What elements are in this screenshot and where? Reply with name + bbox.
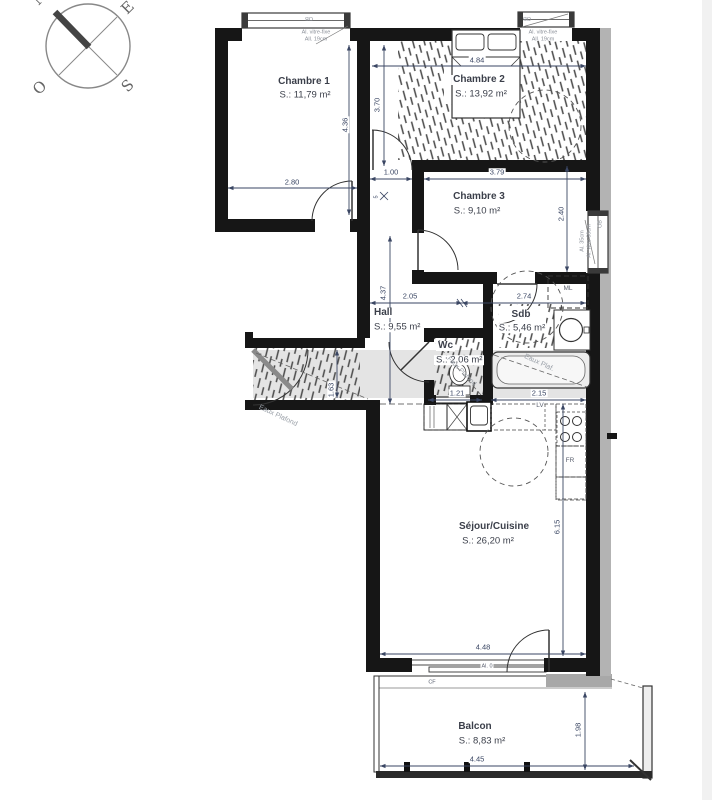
dim-ch2-width: 4.84 — [469, 56, 486, 64]
room-area-balcon: S.: 8,83 m² — [457, 736, 507, 746]
dim-hall-width: 2.05 — [402, 292, 419, 300]
room-area-sejour: S.: 26,20 m² — [460, 536, 516, 546]
dim-passage-width: 1.00 — [383, 168, 400, 176]
page-edge — [702, 0, 712, 800]
compass-rose — [46, 4, 130, 88]
window-note-ch2-l2: All. 19cm — [532, 37, 555, 43]
floorplan-page: Chambre 1 S.: 11,79 m² Chambre 2 S.: 13,… — [0, 0, 712, 800]
kitchen-layer — [380, 402, 586, 500]
dim-kitchen-width: 2.15 — [531, 389, 548, 397]
room-label-sejour: Séjour/Cuisine — [457, 522, 531, 532]
room-area-chambre1: S.: 11,79 m² — [277, 90, 332, 100]
washing-machine-tag: ML — [562, 286, 573, 293]
dim-wall-offset: 5 — [374, 194, 380, 199]
fridge-tag: FR — [565, 458, 576, 465]
room-label-sdb: Sdb — [510, 310, 533, 320]
dim-ch1-height: 4.36 — [341, 117, 349, 134]
dim-balcon-depth: 1.98 — [574, 722, 582, 739]
window-tag-ch3: OB — [598, 220, 604, 228]
room-label-chambre2: Chambre 2 — [451, 75, 507, 85]
window-note-ch1-l2: All. 19cm — [305, 37, 328, 43]
window-note-ch2-l1: Al. vitre-fixe — [529, 30, 558, 36]
window-tag-ch1: OB — [305, 14, 313, 20]
room-label-chambre1: Chambre 1 — [276, 77, 332, 87]
dim-ch3-height: 2.40 — [557, 206, 565, 223]
dim-wc-width: 1.21 — [449, 389, 466, 397]
room-label-wc: Wc — [436, 341, 455, 351]
dim-balcon-width: 4.45 — [469, 755, 486, 763]
room-area-chambre2: S.: 13,92 m² — [453, 89, 509, 99]
dishwasher-tag: LV — [535, 403, 544, 410]
window-tag-ch2: OB — [523, 14, 531, 20]
balcony-layer — [374, 674, 652, 780]
compass-needle — [55, 12, 89, 47]
dim-sejour-height: 6.15 — [553, 519, 561, 536]
floorplan-drawing — [0, 0, 712, 800]
dim-sdb-width: 2.74 — [516, 292, 533, 300]
bay-door — [408, 658, 548, 672]
room-area-chambre3: S.: 9,10 m² — [452, 206, 502, 216]
room-label-hall: Hall — [372, 308, 394, 318]
window-note-ch3-l2: Al. vitre 60cm — [587, 224, 593, 257]
dim-ch3-width: 3.79 — [489, 168, 506, 176]
shutter-box-tag: CF — [427, 680, 436, 686]
dim-sejour-width: 4.48 — [475, 643, 492, 651]
dim-hall-height: 4.37 — [379, 285, 387, 302]
window-note-ch1-l1: Al. vitre-fixe — [302, 30, 331, 36]
threshold-tag: Al. 0 — [480, 664, 493, 670]
room-area-sdb: S.: 5,46 m² — [497, 323, 547, 333]
room-label-chambre3: Chambre 3 — [451, 192, 507, 202]
dim-entry-width: 1.63 — [327, 382, 335, 399]
window-note-ch3-l1: Al. 35cm — [580, 230, 586, 251]
washbasin — [554, 310, 590, 350]
dim-ch1-width: 2.80 — [284, 178, 301, 186]
dim-ch2-left-height: 3.70 — [373, 97, 381, 114]
room-label-balcon: Balcon — [456, 722, 493, 732]
bathtub — [492, 352, 590, 388]
room-area-hall: S.: 9,55 m² — [372, 322, 422, 332]
